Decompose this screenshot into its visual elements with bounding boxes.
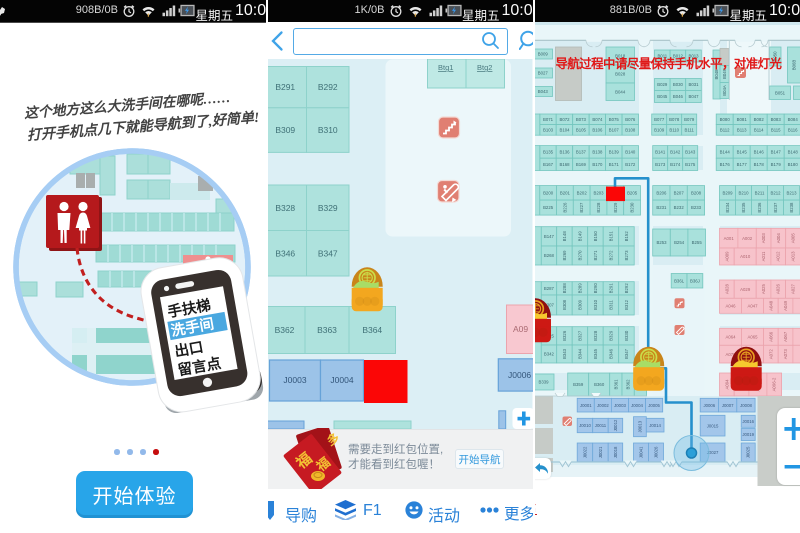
svg-text:B149: B149 xyxy=(577,231,582,242)
svg-text:B200: B200 xyxy=(543,190,554,195)
svg-text:B177: B177 xyxy=(736,162,747,167)
svg-text:A09: A09 xyxy=(513,324,528,334)
svg-text:B229: B229 xyxy=(612,202,617,213)
svg-text:B206: B206 xyxy=(656,190,667,195)
svg-text:B143: B143 xyxy=(685,150,696,155)
svg-text:B075: B075 xyxy=(608,117,619,122)
svg-text:B084: B084 xyxy=(787,117,798,122)
svg-text:B289: B289 xyxy=(577,283,582,294)
svg-text:B201: B201 xyxy=(559,190,570,195)
svg-text:B207: B207 xyxy=(673,190,684,195)
svg-text:B232: B232 xyxy=(673,205,684,210)
svg-text:B031: B031 xyxy=(688,82,699,87)
svg-text:B148: B148 xyxy=(561,231,566,242)
svg-text:J0003: J0003 xyxy=(283,375,306,385)
svg-text:B210: B210 xyxy=(738,190,749,195)
svg-text:J0004: J0004 xyxy=(330,375,353,385)
svg-text:B138: B138 xyxy=(592,150,603,155)
svg-text:A096-2: A096-2 xyxy=(771,377,776,391)
svg-text:B176: B176 xyxy=(719,162,730,167)
svg-text:B328: B328 xyxy=(593,330,598,341)
svg-text:B045: B045 xyxy=(657,94,668,99)
svg-text:A047: A047 xyxy=(747,303,758,308)
svg-text:B028: B028 xyxy=(615,72,626,77)
svg-text:B169: B169 xyxy=(575,162,586,167)
svg-text:B226: B226 xyxy=(562,202,567,213)
svg-text:B043: B043 xyxy=(537,89,548,94)
svg-text:B081: B081 xyxy=(736,117,747,122)
svg-text:B078: B078 xyxy=(669,117,680,122)
svg-text:B271: B271 xyxy=(593,250,598,261)
svg-text:A025: A025 xyxy=(761,283,766,294)
svg-text:B104: B104 xyxy=(559,128,570,133)
svg-text:J0021: J0021 xyxy=(598,446,603,458)
svg-text:B309: B309 xyxy=(577,299,582,310)
svg-text:A065: A065 xyxy=(747,334,758,339)
svg-text:A028: A028 xyxy=(724,283,729,294)
svg-text:B311: B311 xyxy=(608,300,613,310)
svg-text:B110: B110 xyxy=(669,128,679,133)
svg-text:B327: B327 xyxy=(577,330,582,341)
svg-text:A003: A003 xyxy=(761,233,766,244)
svg-text:B235: B235 xyxy=(741,202,746,213)
svg-text:B108: B108 xyxy=(625,128,636,133)
svg-text:A094: A094 xyxy=(724,379,729,390)
svg-text:B227: B227 xyxy=(579,202,584,213)
svg-text:B342: B342 xyxy=(543,352,554,357)
svg-text:J0041: J0041 xyxy=(638,446,643,458)
svg-text:A029: A029 xyxy=(740,287,751,292)
svg-text:A001: A001 xyxy=(723,236,734,241)
svg-text:B361: B361 xyxy=(613,379,618,390)
svg-text:A046: A046 xyxy=(725,303,736,308)
svg-text:B046: B046 xyxy=(672,94,683,99)
svg-text:B270: B270 xyxy=(577,250,582,261)
svg-text:J0026: J0026 xyxy=(653,446,658,458)
svg-text:A004: A004 xyxy=(775,233,780,244)
svg-text:B137: B137 xyxy=(575,150,586,155)
svg-text:B140: B140 xyxy=(625,150,636,155)
svg-text:B310: B310 xyxy=(593,299,598,310)
svg-text:B009: B009 xyxy=(537,52,548,57)
svg-text:B082: B082 xyxy=(753,117,764,122)
svg-text:B147: B147 xyxy=(770,150,781,155)
svg-text:B288: B288 xyxy=(561,283,566,294)
svg-text:B364: B364 xyxy=(362,325,382,335)
svg-text:B080: B080 xyxy=(719,117,730,122)
svg-text:B148: B148 xyxy=(787,150,798,155)
svg-text:B116: B116 xyxy=(787,128,797,133)
svg-text:B139: B139 xyxy=(608,150,619,155)
svg-text:J0013: J0013 xyxy=(637,420,642,432)
svg-text:B179: B179 xyxy=(770,162,781,167)
svg-text:B234: B234 xyxy=(725,202,730,213)
svg-text:B230: B230 xyxy=(629,202,634,213)
svg-text:A011: A011 xyxy=(761,251,766,261)
svg-text:B238: B238 xyxy=(789,202,794,213)
svg-text:B083: B083 xyxy=(770,117,781,122)
svg-text:B329: B329 xyxy=(318,203,338,213)
svg-text:B292: B292 xyxy=(318,82,338,92)
svg-text:B151: B151 xyxy=(608,231,613,242)
svg-text:B146: B146 xyxy=(753,150,764,155)
svg-text:B174: B174 xyxy=(670,162,681,167)
svg-text:J0016: J0016 xyxy=(742,419,754,424)
svg-text:A073: A073 xyxy=(783,349,788,360)
svg-text:B208: B208 xyxy=(690,190,701,195)
svg-text:A002: A002 xyxy=(742,236,753,241)
svg-text:Btg1: Btg1 xyxy=(438,63,453,72)
svg-text:B253: B253 xyxy=(656,240,667,245)
svg-text:B233: B233 xyxy=(690,205,701,210)
svg-text:B292: B292 xyxy=(624,283,629,294)
svg-text:B030: B030 xyxy=(672,82,683,87)
svg-text:B273: B273 xyxy=(624,250,629,261)
svg-text:B36L: B36L xyxy=(674,278,685,283)
svg-text:B072: B072 xyxy=(559,117,570,122)
svg-text:B170: B170 xyxy=(592,162,603,167)
svg-text:B290: B290 xyxy=(593,283,598,294)
svg-text:B346: B346 xyxy=(275,248,295,258)
svg-text:B147: B147 xyxy=(543,234,554,239)
svg-text:B347: B347 xyxy=(624,348,629,359)
svg-text:B107: B107 xyxy=(608,128,619,133)
svg-text:B209: B209 xyxy=(722,190,733,195)
svg-text:B076: B076 xyxy=(625,117,636,122)
svg-text:J0025: J0025 xyxy=(745,446,750,458)
svg-text:B115: B115 xyxy=(770,128,780,133)
svg-text:B109: B109 xyxy=(654,128,665,133)
svg-text:B362: B362 xyxy=(625,379,630,390)
svg-text:J0005: J0005 xyxy=(648,403,660,408)
svg-text:B105: B105 xyxy=(575,128,586,133)
svg-text:B310: B310 xyxy=(318,125,338,135)
svg-text:B330: B330 xyxy=(624,330,629,341)
svg-text:B346: B346 xyxy=(608,348,613,359)
svg-text:B171: B171 xyxy=(608,162,619,167)
svg-text:A013: A013 xyxy=(790,251,795,262)
svg-text:B079: B079 xyxy=(684,117,695,122)
svg-text:A012: A012 xyxy=(775,251,780,262)
svg-text:B112: B112 xyxy=(719,128,729,133)
svg-text:J0006: J0006 xyxy=(508,370,531,380)
svg-text:B029: B029 xyxy=(657,82,668,87)
svg-text:J0001: J0001 xyxy=(579,403,591,408)
svg-text:B136: B136 xyxy=(559,150,570,155)
svg-text:B36J: B36J xyxy=(690,278,700,283)
svg-text:B150: B150 xyxy=(593,231,598,242)
svg-text:B255: B255 xyxy=(691,240,702,245)
svg-text:A009: A009 xyxy=(724,251,729,262)
svg-text:Btg2: Btg2 xyxy=(477,63,492,72)
svg-text:B363: B363 xyxy=(317,325,337,335)
svg-text:A066: A066 xyxy=(768,331,773,342)
svg-text:B326: B326 xyxy=(561,330,566,341)
svg-text:A072: A072 xyxy=(768,349,773,360)
svg-text:B211: B211 xyxy=(754,190,764,195)
svg-text:B167: B167 xyxy=(542,162,553,167)
svg-text:J0019: J0019 xyxy=(742,432,754,437)
svg-text:B202: B202 xyxy=(576,190,587,195)
svg-text:J0011: J0011 xyxy=(594,423,606,428)
svg-text:B268: B268 xyxy=(543,253,554,258)
svg-text:A010: A010 xyxy=(740,254,751,259)
svg-text:B212: B212 xyxy=(770,190,781,195)
svg-text:B172: B172 xyxy=(625,162,636,167)
svg-text:B287: B287 xyxy=(543,286,554,291)
svg-text:A005: A005 xyxy=(790,233,795,244)
svg-text:B205: B205 xyxy=(627,190,638,195)
svg-text:J0014: J0014 xyxy=(649,423,661,428)
svg-text:B113: B113 xyxy=(736,128,746,133)
svg-text:J0002: J0002 xyxy=(597,403,609,408)
svg-text:B213: B213 xyxy=(786,190,797,195)
svg-text:B339: B339 xyxy=(538,380,549,385)
svg-text:B044: B044 xyxy=(615,89,626,94)
svg-text:B269: B269 xyxy=(561,250,566,261)
svg-text:B329: B329 xyxy=(608,330,613,341)
svg-text:B103: B103 xyxy=(542,128,553,133)
svg-text:B071: B071 xyxy=(542,117,553,122)
svg-text:B345: B345 xyxy=(593,348,598,359)
svg-text:B135: B135 xyxy=(542,150,553,155)
svg-text:A027: A027 xyxy=(790,283,795,294)
svg-text:A026: A026 xyxy=(775,283,780,294)
svg-text:B06B: B06B xyxy=(791,60,796,71)
svg-text:B362: B362 xyxy=(275,325,295,335)
svg-text:B180: B180 xyxy=(787,162,798,167)
svg-text:B312: B312 xyxy=(624,299,629,310)
svg-text:J0018: J0018 xyxy=(613,446,618,458)
svg-text:J0022: J0022 xyxy=(582,446,587,458)
svg-text:J0008: J0008 xyxy=(740,403,752,408)
svg-text:B347: B347 xyxy=(318,248,338,258)
svg-text:B051: B051 xyxy=(774,90,785,95)
svg-text:B074: B074 xyxy=(592,117,603,122)
svg-text:B142: B142 xyxy=(670,150,681,155)
svg-text:B073: B073 xyxy=(575,117,586,122)
svg-text:B145: B145 xyxy=(736,150,747,155)
svg-text:B106: B106 xyxy=(592,128,603,133)
svg-text:A067: A067 xyxy=(783,331,788,342)
svg-text:B175: B175 xyxy=(685,162,696,167)
svg-text:B272: B272 xyxy=(608,250,613,261)
svg-text:J0007: J0007 xyxy=(721,403,733,408)
svg-text:J0003: J0003 xyxy=(614,403,626,408)
svg-text:B077: B077 xyxy=(654,117,665,122)
svg-text:B328: B328 xyxy=(275,203,295,213)
svg-text:B360: B360 xyxy=(594,382,605,387)
svg-text:B343: B343 xyxy=(561,348,566,359)
svg-text:B308: B308 xyxy=(561,299,566,310)
svg-text:B225: B225 xyxy=(543,205,554,210)
svg-text:B228: B228 xyxy=(596,202,601,213)
svg-text:B291: B291 xyxy=(275,82,295,92)
svg-text:J0006: J0006 xyxy=(703,403,715,408)
svg-text:A064: A064 xyxy=(725,334,736,339)
svg-text:B144: B144 xyxy=(719,150,730,155)
svg-text:B027: B027 xyxy=(537,71,548,76)
svg-text:A048: A048 xyxy=(768,300,773,311)
svg-text:B152: B152 xyxy=(624,231,629,242)
svg-text:B237: B237 xyxy=(773,202,778,213)
svg-text:B178: B178 xyxy=(753,162,764,167)
svg-text:B168: B168 xyxy=(559,162,570,167)
svg-text:B236: B236 xyxy=(757,202,762,213)
svg-text:B344: B344 xyxy=(577,348,582,359)
svg-text:B114: B114 xyxy=(753,128,763,133)
svg-text:B254: B254 xyxy=(674,240,685,245)
svg-text:B141: B141 xyxy=(655,150,666,155)
svg-text:J0012: J0012 xyxy=(613,419,618,431)
svg-text:B203: B203 xyxy=(593,190,604,195)
svg-text:B173: B173 xyxy=(655,162,666,167)
svg-text:B291: B291 xyxy=(608,283,613,294)
svg-text:B04A: B04A xyxy=(722,85,727,96)
svg-text:B359: B359 xyxy=(573,382,584,387)
svg-text:B047: B047 xyxy=(688,94,699,99)
svg-text:J0004: J0004 xyxy=(631,403,643,408)
svg-text:A049: A049 xyxy=(783,300,788,311)
svg-text:B111: B111 xyxy=(684,128,694,133)
svg-text:J0015: J0015 xyxy=(706,423,718,428)
svg-text:J0010: J0010 xyxy=(579,423,591,428)
svg-text:B231: B231 xyxy=(656,205,667,210)
svg-text:B309: B309 xyxy=(275,125,295,135)
